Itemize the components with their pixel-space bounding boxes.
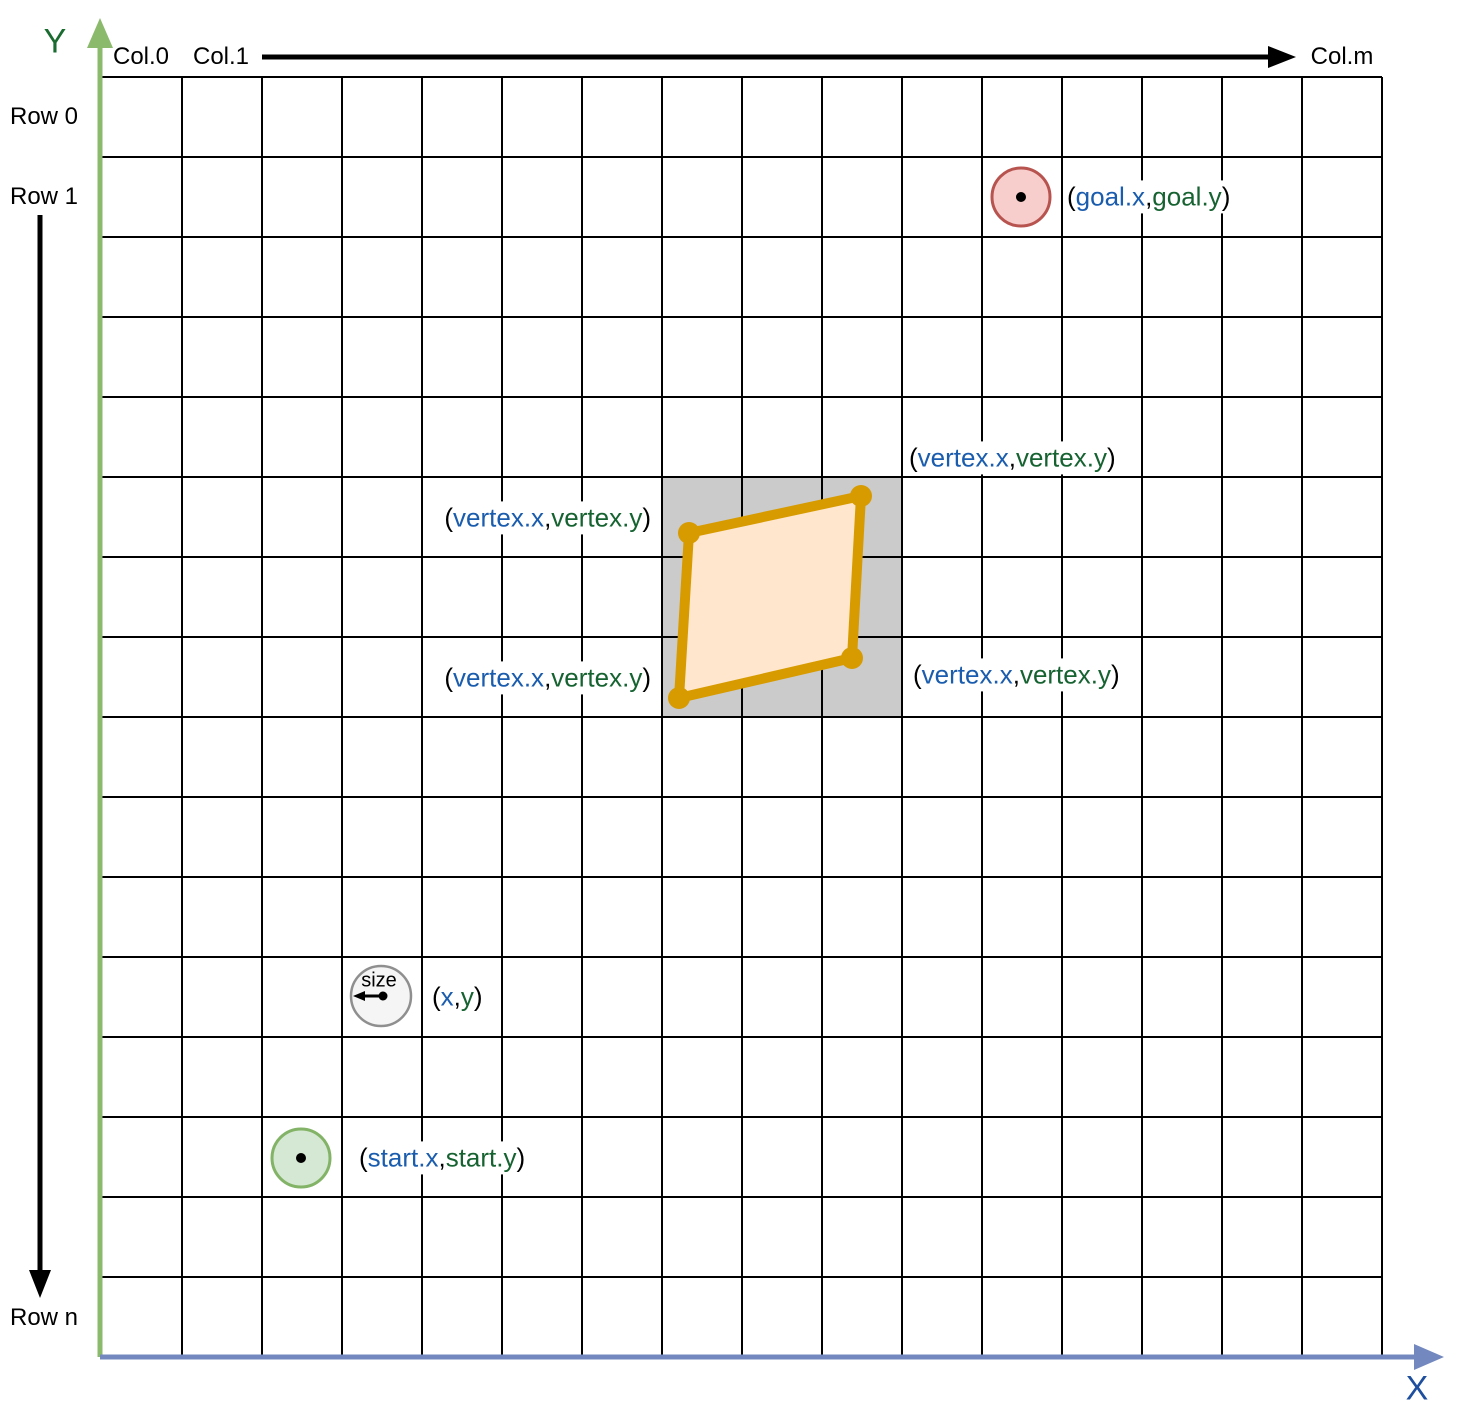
row-n-label: Row n bbox=[10, 1304, 78, 1332]
vertex-y-part: vertex.y bbox=[1016, 442, 1107, 472]
goal-y-part: goal.y bbox=[1152, 181, 1221, 211]
vertex-x-part: vertex.x bbox=[922, 659, 1013, 689]
goal-x-part: goal.x bbox=[1076, 181, 1145, 211]
comma: , bbox=[544, 502, 551, 532]
close-paren: ) bbox=[642, 662, 651, 692]
open-paren: ( bbox=[444, 502, 453, 532]
obstacle-vertex-dot bbox=[678, 522, 700, 544]
close-paren: ) bbox=[1107, 442, 1116, 472]
vertex-coord-label-bottom-right: (vertex.x,vertex.y) bbox=[910, 658, 1123, 691]
comma: , bbox=[438, 1142, 445, 1172]
open-paren: ( bbox=[359, 1142, 368, 1172]
vertex-coord-label-left-bottom: (vertex.x,vertex.y) bbox=[441, 661, 654, 694]
vertex-y-part: vertex.y bbox=[1020, 659, 1111, 689]
vertex-y-part: vertex.y bbox=[551, 502, 642, 532]
start-y-part: start.y bbox=[446, 1142, 517, 1172]
vertex-x-part: vertex.x bbox=[453, 662, 544, 692]
robot-x-part: x bbox=[441, 981, 454, 1011]
start-center-dot bbox=[296, 1153, 306, 1163]
comma: , bbox=[544, 662, 551, 692]
vertex-x-part: vertex.x bbox=[453, 502, 544, 532]
robot-size-label: size bbox=[361, 970, 397, 993]
diagram-graphics bbox=[0, 0, 1460, 1408]
robot-coord-label: (x,y) bbox=[429, 980, 486, 1013]
obstacle-vertex-dot bbox=[850, 485, 872, 507]
vertex-x-part: vertex.x bbox=[918, 442, 1009, 472]
vertex-y-part: vertex.y bbox=[551, 662, 642, 692]
col-0-label: Col.0 bbox=[113, 43, 169, 71]
x-axis-label: X bbox=[1406, 1370, 1429, 1408]
start-x-part: start.x bbox=[368, 1142, 439, 1172]
open-paren: ( bbox=[1067, 181, 1076, 211]
obstacle-vertex-dot bbox=[841, 647, 863, 669]
row-0-label: Row 0 bbox=[10, 103, 78, 131]
goal-center-dot bbox=[1016, 192, 1026, 202]
open-paren: ( bbox=[444, 662, 453, 692]
grid-world-diagram: Y X Col.0 Col.1 Col.m Row 0 Row 1 Row n … bbox=[0, 0, 1460, 1408]
comma: , bbox=[1013, 659, 1020, 689]
close-paren: ) bbox=[1222, 181, 1231, 211]
col-1-label: Col.1 bbox=[193, 43, 249, 71]
y-axis-label: Y bbox=[44, 23, 67, 62]
close-paren: ) bbox=[1111, 659, 1120, 689]
col-m-label: Col.m bbox=[1311, 43, 1374, 71]
goal-coord-label: (goal.x,goal.y) bbox=[1064, 180, 1233, 213]
comma: , bbox=[1009, 442, 1016, 472]
obstacle-vertex-dot bbox=[668, 687, 690, 709]
close-paren: ) bbox=[642, 502, 651, 532]
robot-y-part: y bbox=[461, 981, 474, 1011]
open-paren: ( bbox=[913, 659, 922, 689]
vertex-coord-label-top-right: (vertex.x,vertex.y) bbox=[906, 441, 1119, 474]
close-paren: ) bbox=[474, 981, 483, 1011]
row-1-label: Row 1 bbox=[10, 183, 78, 211]
open-paren: ( bbox=[909, 442, 918, 472]
vertex-coord-label-left-top: (vertex.x,vertex.y) bbox=[441, 501, 654, 534]
comma: , bbox=[454, 981, 461, 1011]
start-coord-label: (start.x,start.y) bbox=[356, 1141, 528, 1174]
close-paren: ) bbox=[517, 1142, 526, 1172]
open-paren: ( bbox=[432, 981, 441, 1011]
